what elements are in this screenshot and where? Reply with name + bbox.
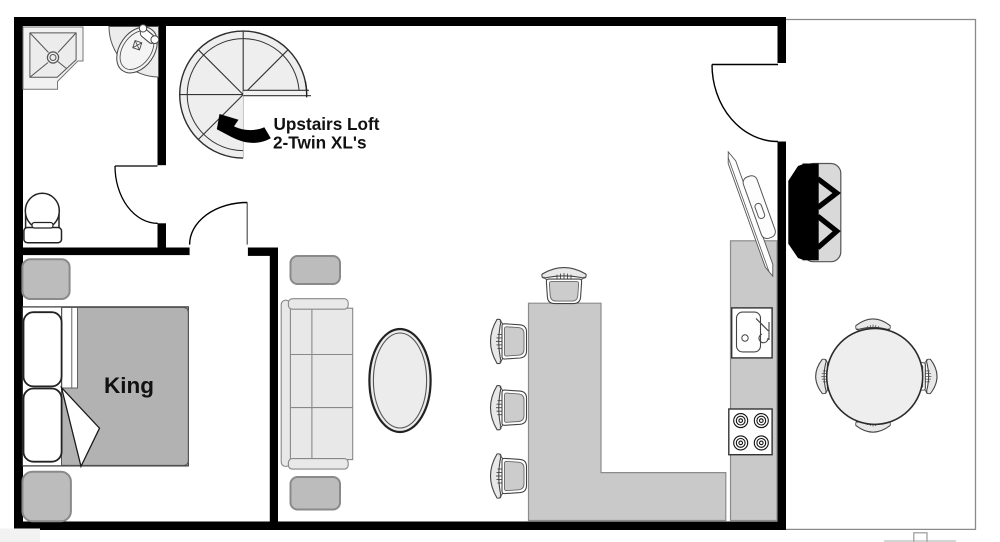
svg-text:Upstairs Loft: Upstairs Loft <box>274 114 380 134</box>
svg-text:2-Twin XL's: 2-Twin XL's <box>273 132 367 152</box>
svg-text:King: King <box>104 373 154 398</box>
